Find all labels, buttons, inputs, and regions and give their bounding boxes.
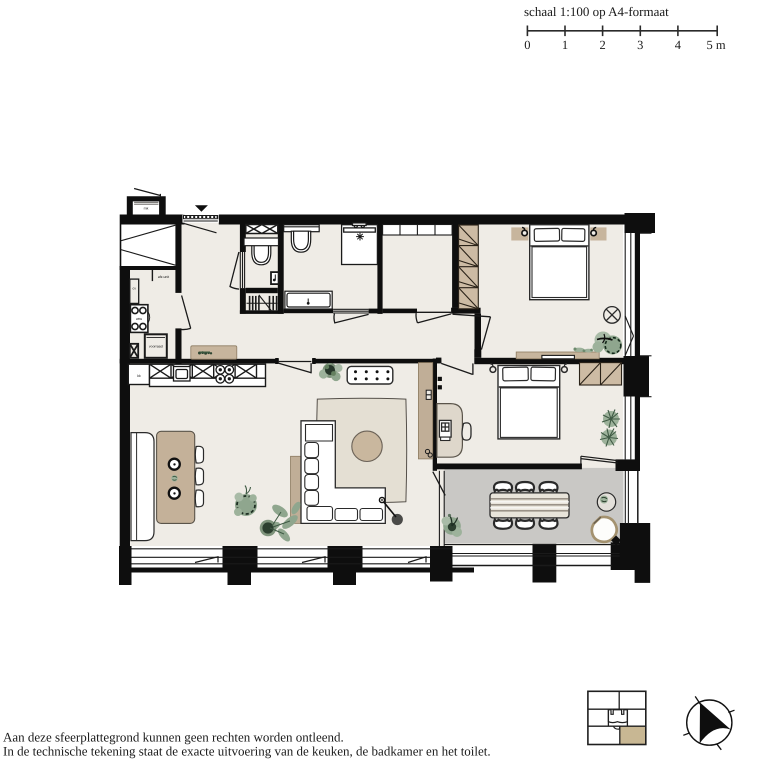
svg-text:Aan deze sfeerplattegrond kunn: Aan deze sfeerplattegrond kunnen geen re… (3, 729, 344, 744)
svg-text:0: 0 (524, 38, 530, 52)
svg-text:afz.unit: afz.unit (158, 275, 169, 279)
svg-text:wtw: wtw (136, 317, 143, 321)
svg-text:1: 1 (562, 38, 568, 52)
svg-text:2: 2 (599, 38, 605, 52)
svg-text:mk: mk (144, 207, 149, 211)
svg-text:kk: kk (137, 374, 141, 378)
svg-text:In de technische tekening staa: In de technische tekening staat de exact… (3, 744, 491, 759)
svg-text:schaal 1:100 op A4-formaat: schaal 1:100 op A4-formaat (524, 4, 669, 19)
svg-text:5 m: 5 m (706, 38, 725, 52)
svg-text:voorraad: voorraad (149, 344, 163, 348)
svg-text:cv: cv (132, 287, 136, 291)
svg-text:4: 4 (675, 38, 682, 52)
svg-text:3: 3 (637, 38, 643, 52)
